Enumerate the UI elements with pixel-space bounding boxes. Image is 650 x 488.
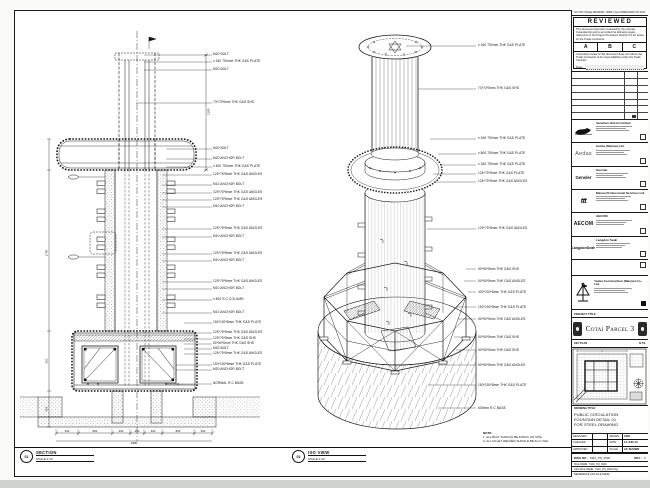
dim-text: 300 [201,429,206,433]
banner-ornament-icon [573,322,582,336]
leader-label: M20 ANCHOR BOLT [213,157,244,160]
reviewed-status-options: A B C [574,42,646,52]
contractor-block: Yadea Construction (Macau) Co., Ltd. [572,276,648,310]
key-plan-scale: N.T.S. [639,340,646,347]
revision-row [572,106,648,113]
consultant-row: ttt Macau Professional Services Ltd. [572,190,648,213]
date-label: Date : [576,65,584,70]
drawing-title-label: DRAWING TITLE: [574,407,646,410]
consultant-row: Gensler Gensler [572,167,648,190]
project-title: Cotai Parcel 3 [586,324,635,333]
view-scale: SCALE 1:10 [36,455,94,462]
revision-row [572,86,648,93]
drawing-title-line: FOR STEEL DRAWING [574,422,646,427]
leader-label: M10 ANCHOR BOLT [213,205,244,208]
consultant-row: Venetian Orient Limited [572,120,648,143]
reviewed-title: REVIEWED [574,18,646,27]
leader-label: 73*73*5mm THK G&S SHS [478,87,519,90]
drawing-sheet-page: 1100 [0,0,650,488]
key-plan-header: KEY PLAN N.T.S. [572,340,648,348]
checkbox-icon [640,262,646,268]
drawing-title-block: DRAWING TITLE: PUBLIC CIRCULATION FOUNTA… [572,406,648,434]
contractor-name: Yadea Construction (Macau) Co., Ltd. [594,280,646,287]
checkbox-icon [640,158,646,164]
leader-label: M10 ANCHOR BOLT [213,235,244,238]
leader-label: 125*75*8mm THK G&S SHS [213,337,256,340]
aedas-logo-icon: Aedas [572,143,595,165]
leader-label: M20 BOLT [213,53,229,56]
dim-text: 860 [93,429,98,433]
revision-row [572,113,648,120]
dim-text: 450 [135,429,140,433]
leader-label: x 340 750mm THK G&S PLATE [478,163,525,166]
ttt-logo-icon: ttt [572,190,595,212]
status-option-c: C [622,43,646,51]
project-title-label: PROJECT TITLE [572,310,648,318]
consultant-name: Venetian Orient Limited [596,122,647,125]
leader-label: 125*75*8mm THK G&S ANGLES [213,280,262,283]
checkbox-icon [640,134,646,140]
leader-label: M10 ANCHOR BOLT [213,259,244,262]
dwg-no-label: DWG NO : [574,454,588,461]
field-value: - [593,447,609,453]
leader-label: x 500 750mm THK G&S PLATE [213,165,260,168]
status-option-a: A [574,43,597,51]
consultant-name: Macau Professional Services Ltd. [596,192,647,195]
leader-label: 50*50*5mm THK G&S SHS [478,336,519,339]
checkbox-icon [640,251,646,257]
iso-view-linework [288,13,572,449]
dim-text: 300 [65,429,70,433]
reviewed-stamp: REVIEWED This document has been reviewed… [572,16,648,72]
consultant-name: AECOM [596,215,647,218]
key-plan-label: KEY PLAN [574,340,587,347]
consultant-row: LangdonSeah Langdon Seah [572,237,648,259]
empty-consultant-row [572,260,648,276]
leader-label: M10 ANCHOR BOLT [213,287,244,290]
leader-label: 150*150*8mm THK G&S PLATE [478,306,526,309]
dim-text: 300 [151,429,156,433]
leader-label: 150*150*8mm THK G&S PLATE [213,321,261,324]
leader-label: M20 BOLT [213,347,229,350]
dim-text: 600 [45,358,49,363]
consultant-row: Aedas Aedas (Macau) Ltd. [572,143,648,166]
leader-label: 50*50*5mm THK G&S ANGLES [478,318,526,321]
leader-label: 50*50*5mm THK G&S SHS [478,268,519,271]
key-plan [572,348,648,406]
detail-bubble-icon: 01 [20,450,33,463]
leader-label: 50*50*5mm THK G&S ANGLES [478,280,526,283]
dim-text: 300 [119,429,124,433]
leader-label: 50*50*5mm THK G&S SHS [213,342,254,345]
consultant-list: Venetian Orient Limited Aedas Aedas (Mac… [572,120,648,260]
cad-file-label: CAD FILE NAME : [574,468,595,471]
leader-label: M10 ANCHOR BOLT [213,311,244,314]
field-label: APPROVED [572,447,593,453]
consultant-name: Aedas (Macau) Ltd. [596,145,647,148]
section-callout: 01 SECTION SCALE 1:10 [20,450,94,463]
project-title-banner: Cotai Parcel 3 [572,318,648,340]
file-label: FILE NAME : [574,463,589,466]
revision-row [572,100,648,107]
leader-label: 125*75*8mm THK G&S ANGLES [213,173,262,176]
leader-label: x 800 750mm THK G&S PLATE [478,152,525,155]
leader-label: 125*75*8mm THK G&S ANGLES [478,227,527,230]
leader-label: M20 ANCHOR BOLT [213,368,244,371]
leader-label: 125*75*8mm THK G&S ANGLES [213,191,262,194]
general-notes: NOTE: 1. ALL BOLT SHOULD BE FIXING ON SI… [483,431,549,443]
consultant-row: AECOM AECOM [572,213,648,236]
reviewed-body: This document has been reviewed by the r… [574,27,646,42]
gensler-logo-icon: Gensler [572,167,595,189]
leader-label: 125*75*8mm THK G&S ANGLES [478,180,527,183]
date-line [586,65,644,70]
rev-value: C [644,454,646,461]
checkbox-icon [640,204,646,210]
leader-label: NORMAL R.C BASE [213,382,244,385]
revision-table [572,72,648,120]
leader-label: x 340 750mm THK G&S PLATE [478,137,525,140]
leader-label: 600mm R.C BASE [478,407,506,410]
signoff-fields: DESIGNED DRAWN LWO CHECKED - DATE 14-JUN… [572,434,648,454]
reviewed-footer: Consultant review of this document does … [574,52,646,64]
file-value: 5110_PQ_0000 [589,463,606,466]
revision-row [572,72,648,79]
leader-label: 50*50*5mm THK G&S ANGLES [478,364,526,367]
leader-label: 125*75*8mm THK G&S PLATE [478,172,524,175]
ref-cad-file-label: REFERENCE CAD FILE NAME : [574,473,611,476]
dim-text: 1745 [45,249,49,256]
field-value: AS SHOWN [623,447,648,453]
consultant-name: Langdon Seah [596,239,647,242]
flag-marker-icon [149,37,156,41]
callout-number: 01 [25,455,29,459]
field-label: SCALE [608,447,622,453]
flag-marker-icon [68,175,79,259]
dwg-no-value: 5110_PQ_0000 [590,454,610,461]
iso-callout: 02 ISO VIEW SCALE 1:20 [292,450,366,463]
callout-number: 02 [297,455,301,459]
leader-label: M20 BOLT [213,147,229,150]
stamp-square [641,301,646,306]
aecom-logo-icon: AECOM [572,213,595,235]
title-block: DO NOT SCALE DRAWING. VERIFY ALL DIMENSI… [571,10,648,477]
photo-edge-band [0,480,650,488]
note-line: 2. ALL FILLET WELDED SHOULD BE 6mm THK. [483,439,549,443]
leader-label: x 800 R.C COLUMN [213,298,243,301]
leader-label: 150*150*8mm THK G&S PLATE [478,384,526,387]
leader-label: 125*75*8mm THK G&S ANGLES [213,227,262,230]
revision-row [572,93,648,100]
langdon-seah-logo-icon: LangdonSeah [572,237,595,259]
leader-label: 50*50*5mm THK G&S SHS [478,349,519,352]
detail-bubble-icon: 02 [292,450,305,463]
leader-label: 150*150*8mm THK G&S PLATE [213,363,261,366]
status-option-b: B [597,43,621,51]
leader-label: x 340 750mm THK G&S PLATE [213,60,260,63]
banner-ornament-icon [638,322,647,336]
leader-label: 400*200*8mm THK G&S PLATE [478,291,526,294]
leader-label: 125*75*8mm THK G&S ANGLES [213,331,262,334]
ref-cad-file-row: REFERENCE CAD FILE NAME : [572,472,648,477]
dim-text: 1100 [207,108,211,115]
view-scale: SCALE 1:20 [308,455,366,462]
rev-label: REV : [634,454,642,461]
venetian-logo-icon [572,120,595,142]
leader-label: 125*75*8mm THK G&S ANGLES [213,352,262,355]
leader-label: x 340 750mm THK G&S PLATE [478,44,525,47]
leader-label: 73*73*5mm THK G&S SHS [213,101,254,104]
dwg-number-row: DWG NO : 5110_PQ_0000 REV : C [572,454,648,462]
leader-label: M20 BOLT [213,68,229,71]
cad-file-value: 5110_PQ_0000.dwg [595,468,618,471]
consultant-name: Gensler [596,169,647,172]
checkbox-icon [640,181,646,187]
dim-text: 400 [45,406,49,411]
leader-label: 125*75*8mm THK G&S ANGLES [213,252,262,255]
dim-text: 860 [176,429,181,433]
contractor-logo-icon [573,278,593,307]
leader-label: 125*75*8mm THK G&S ANGLES [213,198,262,201]
checkbox-icon [640,228,646,234]
dim-total-text: 2980 [131,441,138,445]
section-view-linework: 1100 [16,13,288,449]
drawing-area-divider [14,447,571,448]
leader-label: M10 ANCHOR BOLT [213,183,244,186]
revision-row [572,79,648,86]
